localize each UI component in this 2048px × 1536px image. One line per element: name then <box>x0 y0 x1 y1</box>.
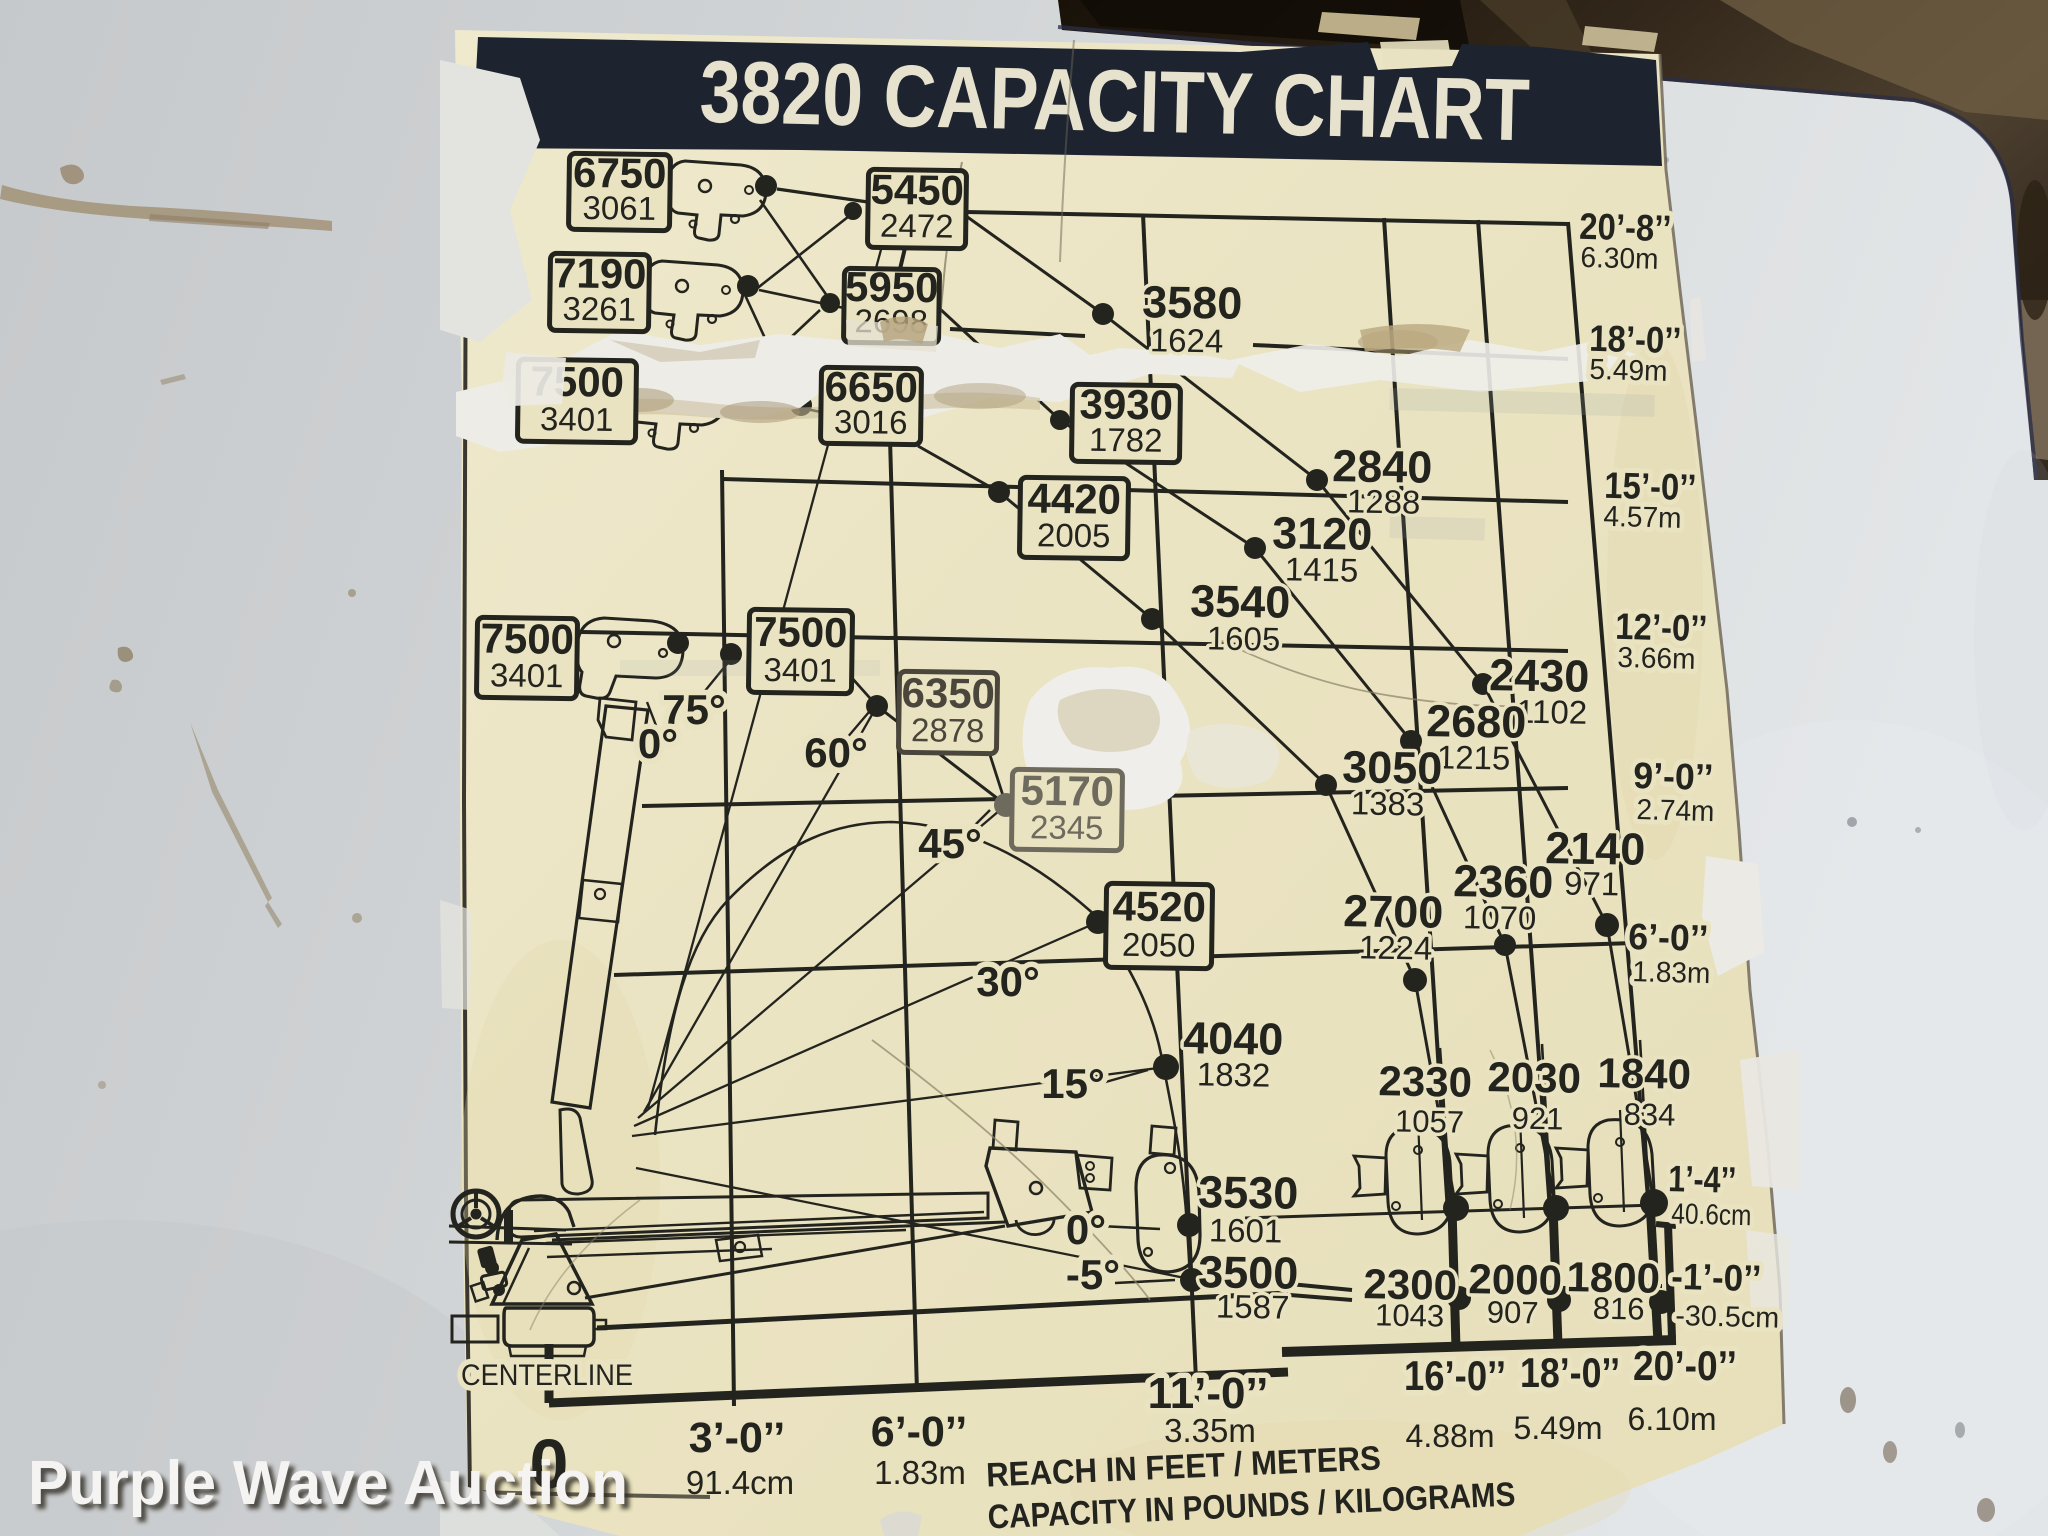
svg-text:3.66m: 3.66m <box>1617 642 1696 676</box>
svg-text:1057: 1057 <box>1395 1103 1465 1139</box>
svg-text:2050: 2050 <box>1122 926 1196 964</box>
svg-text:3401: 3401 <box>540 400 614 438</box>
svg-text:1070: 1070 <box>1463 898 1537 936</box>
svg-text:6’-0’’: 6’-0’’ <box>1628 916 1709 959</box>
svg-text:1587: 1587 <box>1216 1287 1290 1325</box>
svg-text:CENTERLINE: CENTERLINE <box>461 1359 633 1392</box>
svg-text:18’-0’’: 18’-0’’ <box>1520 1349 1620 1396</box>
svg-text:3’-0’’: 3’-0’’ <box>689 1414 785 1462</box>
svg-text:1’-4’’: 1’-4’’ <box>1668 1158 1737 1201</box>
svg-text:3401: 3401 <box>490 656 564 694</box>
svg-text:-1’-0’’: -1’-0’’ <box>1671 1256 1762 1299</box>
svg-text:971: 971 <box>1564 864 1620 902</box>
svg-text:2878: 2878 <box>911 711 985 749</box>
svg-text:1782: 1782 <box>1089 421 1163 459</box>
svg-text:2345: 2345 <box>1030 808 1104 846</box>
svg-text:5.49m: 5.49m <box>1589 354 1668 388</box>
svg-text:1832: 1832 <box>1197 1055 1271 1093</box>
svg-text:6.30m: 6.30m <box>1580 242 1659 276</box>
svg-text:0°: 0° <box>1066 1206 1106 1253</box>
svg-text:3401: 3401 <box>763 651 837 689</box>
svg-text:3.35m: 3.35m <box>1164 1412 1256 1449</box>
svg-text:45°: 45° <box>918 820 982 867</box>
svg-text:91.4cm: 91.4cm <box>686 1464 794 1501</box>
svg-text:2030: 2030 <box>1487 1053 1581 1102</box>
svg-text:1383: 1383 <box>1351 784 1425 822</box>
svg-text:2.74m: 2.74m <box>1636 794 1715 828</box>
svg-text:3261: 3261 <box>562 290 636 328</box>
svg-text:1605: 1605 <box>1207 619 1281 657</box>
svg-text:20’-0’’: 20’-0’’ <box>1633 1342 1737 1389</box>
svg-text:7500: 7500 <box>754 608 848 656</box>
svg-text:921: 921 <box>1511 1101 1563 1137</box>
svg-text:5.49m: 5.49m <box>1514 1410 1603 1446</box>
svg-text:1215: 1215 <box>1437 738 1511 776</box>
svg-text:-30.5cm: -30.5cm <box>1675 1300 1780 1335</box>
svg-text:816: 816 <box>1593 1291 1645 1327</box>
svg-text:1624: 1624 <box>1150 321 1224 359</box>
svg-text:6.10m: 6.10m <box>1628 1401 1717 1437</box>
svg-text:3061: 3061 <box>582 189 656 227</box>
svg-text:15°: 15° <box>1041 1060 1105 1107</box>
svg-text:60°: 60° <box>804 729 868 776</box>
svg-text:0°: 0° <box>638 720 678 767</box>
svg-text:3016: 3016 <box>834 403 908 441</box>
svg-text:1224: 1224 <box>1359 928 1433 966</box>
svg-text:4520: 4520 <box>1112 882 1206 930</box>
svg-text:1601: 1601 <box>1209 1211 1283 1249</box>
svg-text:3820 CAPACITY CHART: 3820 CAPACITY CHART <box>699 42 1531 160</box>
svg-text:40.6cm: 40.6cm <box>1671 1198 1752 1232</box>
svg-text:1.83m: 1.83m <box>874 1454 966 1491</box>
svg-text:Purple Wave Auction: Purple Wave Auction <box>28 1449 628 1518</box>
svg-text:11’-0’’: 11’-0’’ <box>1148 1369 1269 1418</box>
svg-text:1840: 1840 <box>1597 1049 1691 1098</box>
svg-text:9’-0’’: 9’-0’’ <box>1633 755 1714 798</box>
svg-text:1043: 1043 <box>1375 1297 1445 1333</box>
svg-text:-5°: -5° <box>1066 1251 1120 1298</box>
svg-text:1.83m: 1.83m <box>1632 956 1711 990</box>
svg-text:16’-0’’: 16’-0’’ <box>1404 1352 1506 1399</box>
svg-text:6350: 6350 <box>901 669 995 717</box>
svg-text:1415: 1415 <box>1285 550 1359 588</box>
svg-text:2472: 2472 <box>880 207 954 245</box>
svg-text:834: 834 <box>1623 1097 1675 1133</box>
svg-text:4.57m: 4.57m <box>1603 501 1682 535</box>
svg-text:6’-0’’: 6’-0’’ <box>871 1408 967 1456</box>
svg-text:30°: 30° <box>976 958 1040 1005</box>
svg-text:2005: 2005 <box>1037 516 1111 554</box>
svg-text:2330: 2330 <box>1378 1057 1472 1106</box>
svg-text:4.88m: 4.88m <box>1406 1418 1495 1454</box>
svg-text:907: 907 <box>1487 1295 1539 1331</box>
